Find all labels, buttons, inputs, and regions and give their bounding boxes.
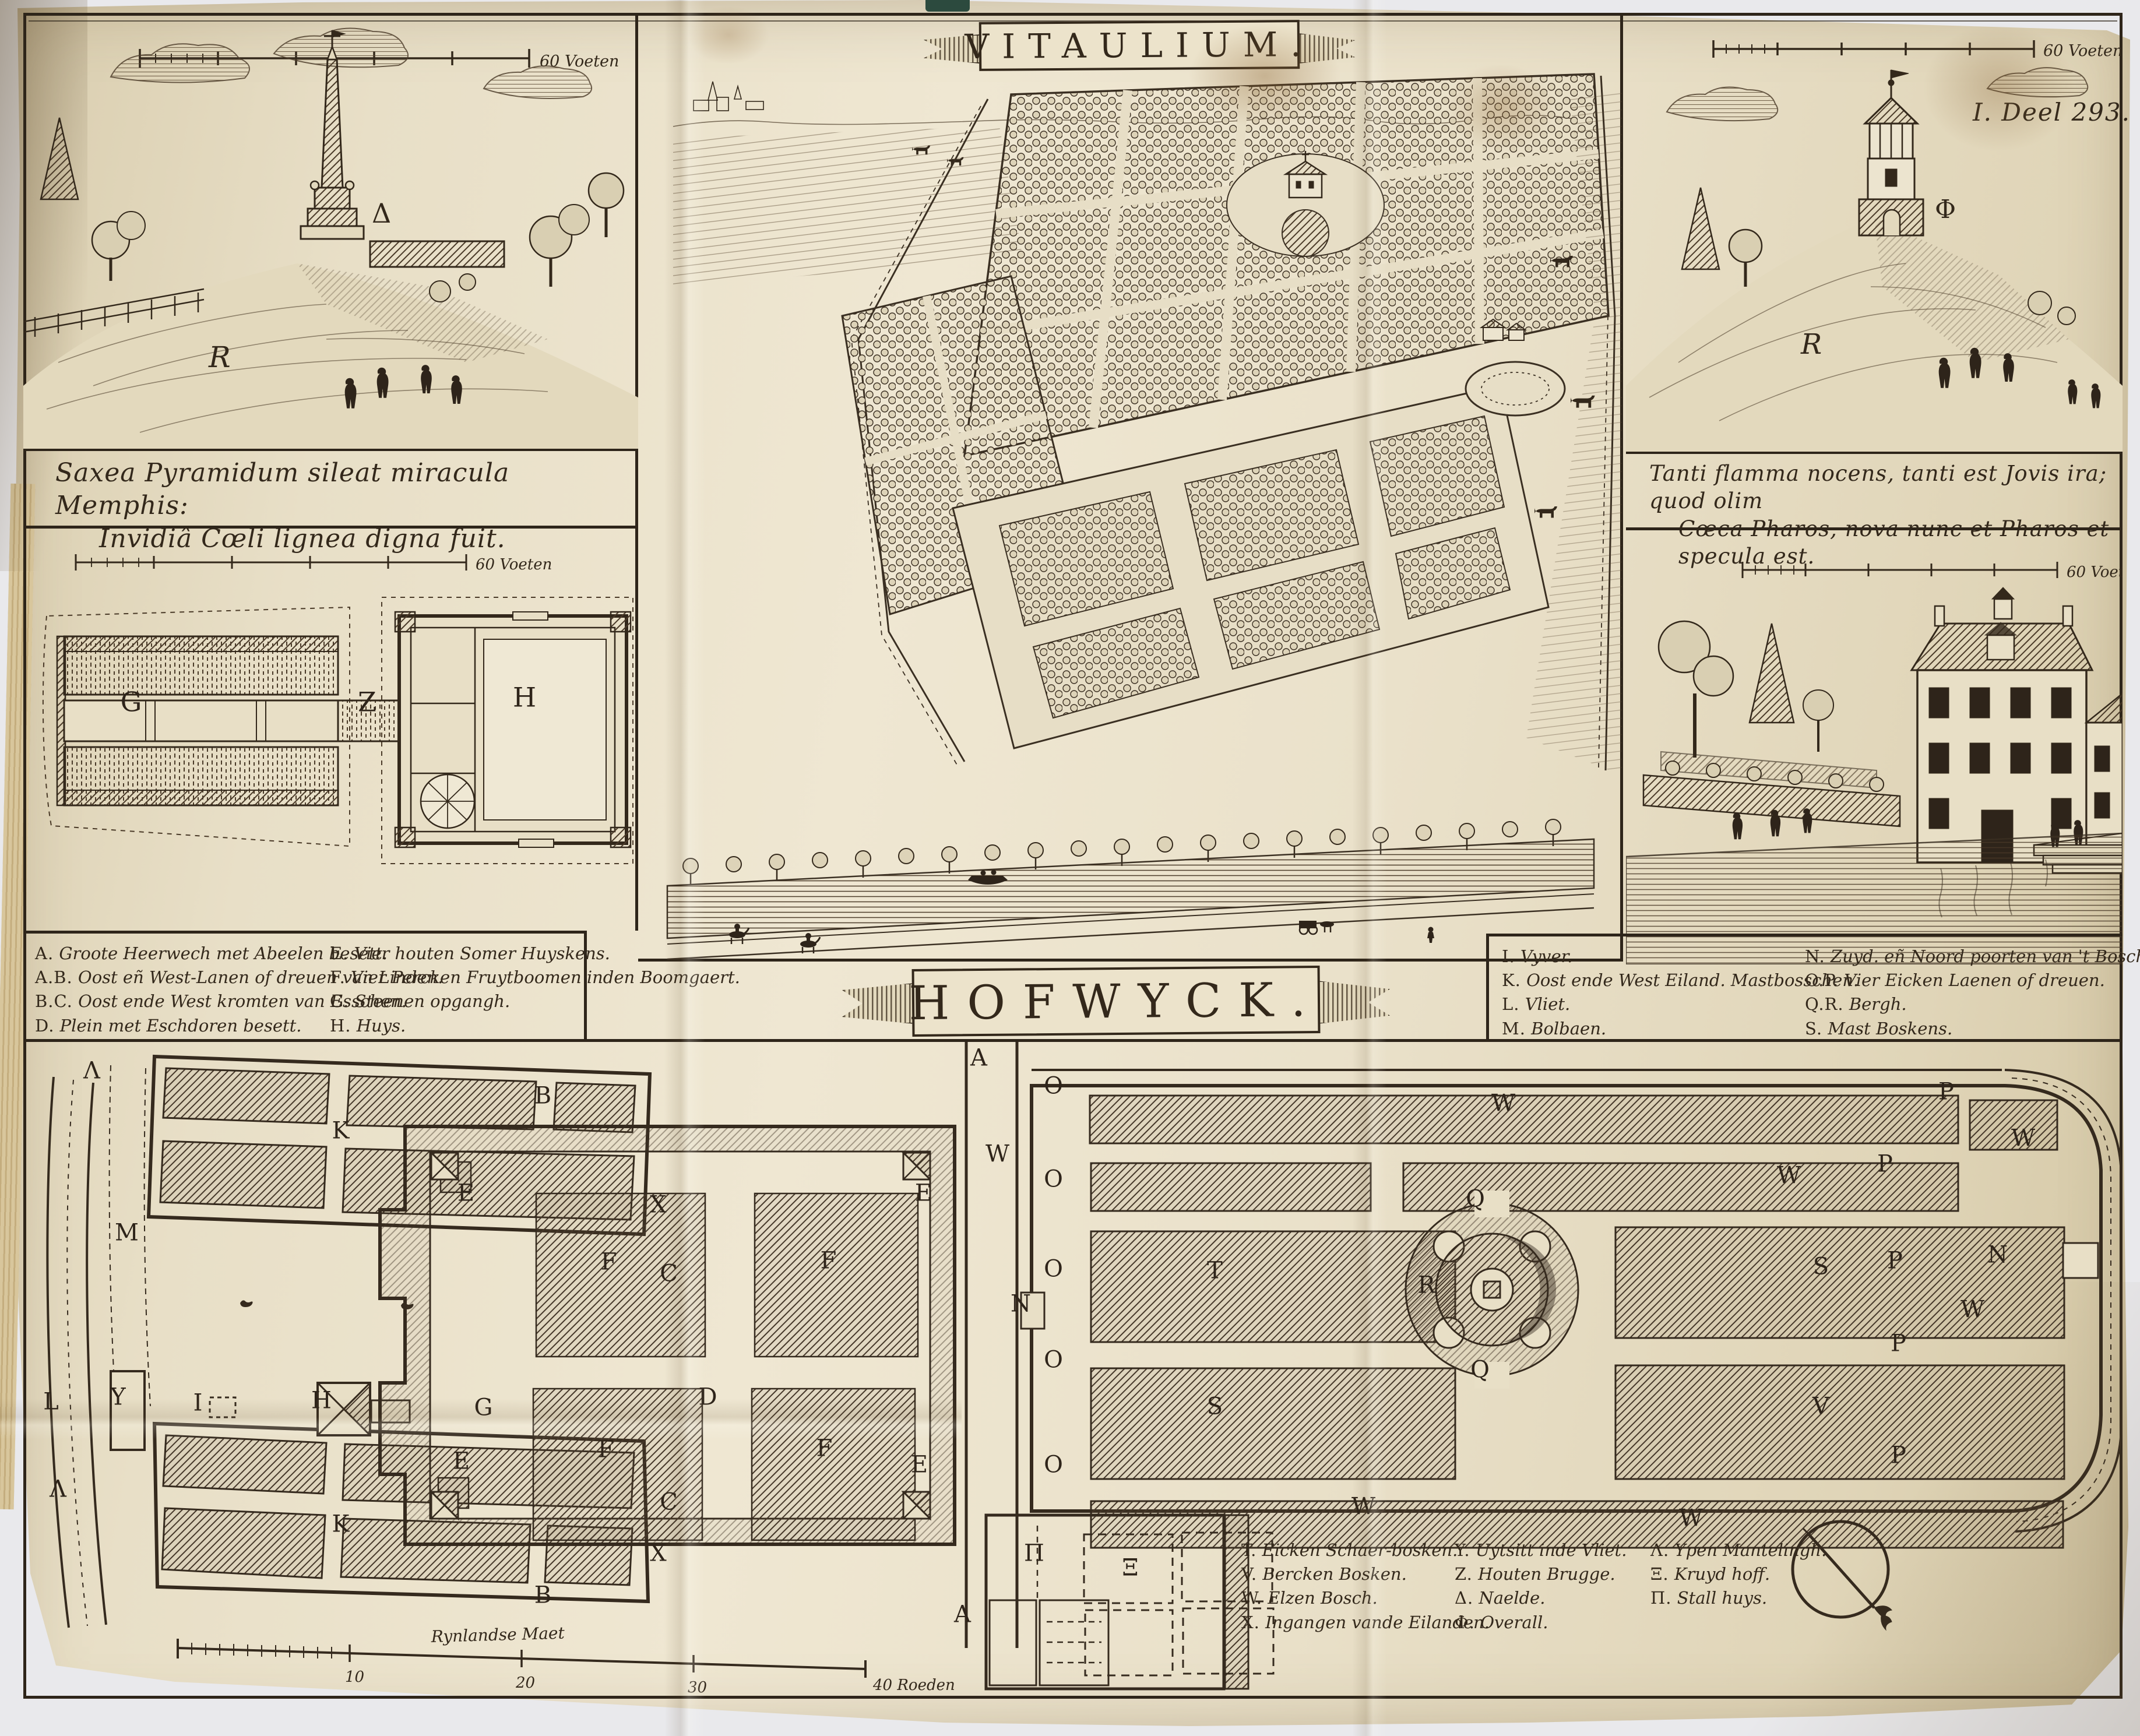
- plan-letter: K: [332, 1511, 350, 1538]
- plan-letter: V: [1812, 1393, 1830, 1420]
- plan-letter: I: [193, 1390, 203, 1417]
- plan-letter: B: [534, 1582, 552, 1609]
- canal: [667, 839, 1594, 938]
- plan-letter: Z: [358, 686, 376, 717]
- clouds: [111, 29, 592, 98]
- bolbaen-oval: [1466, 362, 1565, 415]
- legend-entry: Z. Houten Brugge.: [1455, 1562, 1629, 1586]
- plan-letter: F: [816, 1435, 833, 1462]
- legend-entry: M. Bolbaen.: [1502, 1017, 1793, 1041]
- plan-letter: C: [660, 1489, 678, 1516]
- obelisk-engraving: 60 Voeten: [23, 13, 638, 449]
- legend-top-left: A. Groote Heerwech met Abeelen besett.A.…: [23, 931, 587, 1039]
- legend-entry: L. Vliet.: [1502, 992, 1793, 1016]
- legend-entry: N. Zuyd. eñ Noord poorten van 't Bosch.: [1805, 945, 2120, 969]
- plan-letter: W: [1351, 1494, 1376, 1520]
- plan-letter: O: [1044, 1347, 1064, 1374]
- plan-letter: X: [650, 1192, 667, 1219]
- legend-entry: A.B. Oost eñ West-Lanen of dreuen van Li…: [35, 966, 315, 990]
- legend-entry: I. Vyver.: [1502, 945, 1793, 969]
- plan-letter: H: [311, 1388, 332, 1414]
- tower-icon: [1859, 70, 1923, 235]
- bookmark-ribbon: [925, 0, 970, 12]
- plan-letter: S: [1813, 1253, 1829, 1280]
- scale-label: 60 Voeten: [2043, 42, 2123, 60]
- latin-quote-right: Tanti flamma nocens, tanti est Jovis ira…: [1626, 452, 2123, 527]
- page-number: I. Deel 293.: [1973, 98, 2131, 126]
- plan-letter: E: [911, 1452, 928, 1478]
- plan-letter: R: [1417, 1272, 1435, 1299]
- plan-letter: Q: [1466, 1186, 1486, 1213]
- latin-quote-left: Saxea Pyramidum sileat miracula Memphis:…: [23, 449, 638, 526]
- quote-line: Saxea Pyramidum sileat miracula Memphis:: [55, 457, 635, 523]
- photograph-of-engraved-map: 60 Voeten: [0, 0, 2140, 1736]
- plan-letter: W: [1491, 1090, 1516, 1117]
- legend-entry: Q.R. Bergh.: [1805, 992, 2120, 1016]
- tower-engraving: 60 Voeten: [1626, 13, 2123, 452]
- plan-letter: E: [915, 1180, 932, 1207]
- house-engraving: 60 Voeten: [1626, 530, 2123, 964]
- legend-entry: K. Oost ende West Eiland. Mastbosschen.: [1502, 969, 1793, 992]
- plan-letter: H: [513, 681, 536, 713]
- plan-letter: P: [1877, 1151, 1893, 1178]
- legend-entry: Φ. Overall.: [1455, 1611, 1629, 1635]
- legend-entry: Λ. Ypen Mantelingh.: [1650, 1538, 1814, 1562]
- plan-letter: N: [1011, 1291, 1032, 1318]
- mount: [1282, 210, 1329, 256]
- legend-entry: Δ. Naelde.: [1455, 1586, 1629, 1610]
- legend-column-I-M: I. Vyver.K. Oost ende West Eiland. Mastb…: [1502, 945, 1793, 1034]
- plan-letter: W: [985, 1141, 1010, 1168]
- garden-plan: Rynlandse Maet 10 20 30 40 Roeden ΛBKMXC…: [23, 1039, 2123, 1699]
- plan-letter: P: [1891, 1442, 1907, 1469]
- trees: [1659, 621, 1833, 758]
- figure: [1733, 813, 1743, 840]
- obelisk-vignette: 60 Voeten: [23, 13, 638, 449]
- legend-entry: W. Elzen Bosch.: [1241, 1586, 1434, 1610]
- plan-letter: G: [121, 686, 142, 717]
- plan-letter: A: [954, 1601, 972, 1628]
- plan-letter: G: [474, 1395, 494, 1421]
- plan-letter: N: [1987, 1242, 2008, 1269]
- plan-letter-phi: Φ: [1935, 195, 1956, 224]
- plan-letter: L: [43, 1389, 59, 1415]
- legend-column-N-S: N. Zuyd. eñ Noord poorten van 't Bosch.O…: [1805, 945, 2120, 1034]
- legend-column-A-D: A. Groote Heerwech met Abeelen besett.A.…: [35, 942, 315, 1031]
- plan-letter: F: [821, 1248, 837, 1274]
- plan-letter: Y: [110, 1384, 126, 1411]
- plan-letter: O: [1044, 1452, 1064, 1478]
- plan-letter-r: R: [208, 340, 231, 374]
- legend-entry: Y. Uytsitt inde Vliet.: [1455, 1538, 1629, 1562]
- legend-entry: G. Steenen opgangh.: [330, 990, 580, 1013]
- legend-entry: B.C. Oost ende West kromten van Esschen.: [35, 990, 315, 1013]
- plan-letter: O: [1044, 1256, 1064, 1283]
- vitaulium-banner: VITAULIUM.: [924, 17, 1355, 76]
- scale-label: 60 Voeten: [2067, 564, 2123, 581]
- plan-letter: P: [1938, 1079, 1955, 1105]
- legend-entry: Π. Stall huys.: [1650, 1586, 1814, 1610]
- ribbon-tail-icon: [1312, 980, 1390, 1024]
- legend-column-Lambda-Pi: Λ. Ypen Mantelingh.Ξ. Kruyd hoff.Π. Stal…: [1650, 1538, 1814, 1635]
- house-ground-plan: 60 Voeten: [23, 526, 638, 931]
- plan-letter: P: [1891, 1330, 1907, 1357]
- legend-entry: S. Mast Boskens.: [1805, 1017, 2120, 1041]
- fields: [673, 126, 1023, 287]
- legend-column-T-X: T. Eicken Schaer-bosken.V. Bercken Boske…: [1241, 1538, 1434, 1635]
- plan-letter: E: [453, 1448, 470, 1475]
- legend-entry: V. Bercken Bosken.: [1241, 1562, 1434, 1586]
- plan-letter-r: R: [1800, 328, 1822, 361]
- plan-letter: Π: [1024, 1540, 1045, 1567]
- plan-letter: O: [1044, 1166, 1064, 1193]
- plan-letter: X: [650, 1540, 667, 1567]
- banner-title: HOFWYCK.: [912, 966, 1321, 1037]
- plan-letter: T: [1207, 1258, 1223, 1284]
- plan-letter: W: [1679, 1505, 1703, 1532]
- obelisk-icon: [301, 30, 504, 267]
- legend-entry: O.P. Vier Eicken Laenen of dreuen.: [1805, 969, 2120, 992]
- plan-letter-delta: Δ: [372, 198, 391, 229]
- plan-letter: D: [698, 1384, 717, 1411]
- quote-line: Tanti flamma nocens, tanti est Jovis ira…: [1649, 460, 2123, 515]
- plan-letter: M: [115, 1220, 139, 1246]
- hofwyck-house: [1912, 587, 2123, 862]
- plan-letter: E: [457, 1180, 475, 1207]
- scale-bar: [1743, 562, 2057, 578]
- scale-bar: [1713, 40, 2034, 58]
- cow: [1534, 506, 1557, 518]
- legend-bottom: T. Eicken Schaer-bosken.V. Bercken Boske…: [1241, 1538, 1814, 1635]
- plan-letter: F: [601, 1249, 618, 1276]
- legend-column-Y-Phi: Y. Uytsitt inde Vliet.Z. Houten Brugge.Δ…: [1455, 1538, 1629, 1635]
- distant-town: [694, 82, 763, 111]
- hofwyck-banner: HOFWYCK.: [842, 963, 1390, 1044]
- plan-letter: Q: [1470, 1357, 1490, 1383]
- legend-entry: F. Vier Percken Fruytboomen inden Boomga…: [330, 966, 580, 990]
- legend-entry: D. Plein met Eschdoren besett.: [35, 1014, 315, 1038]
- plan-letter: W: [1777, 1163, 1801, 1189]
- legend-entry: H. Huys.: [330, 1014, 580, 1038]
- plan-letter: K: [332, 1118, 350, 1145]
- legend-entry: E. Vier houten Somer Huyskens.: [330, 942, 580, 966]
- plan-letter: B: [534, 1083, 552, 1110]
- plan-letter: O: [1044, 1073, 1064, 1100]
- inset-letters: GZH: [23, 529, 635, 931]
- banner-title: VITAULIUM.: [979, 20, 1300, 71]
- tower-vignette: 60 Voeten: [1626, 13, 2123, 452]
- plan-letter: F: [598, 1436, 615, 1463]
- plan-letter: W: [2011, 1125, 2036, 1152]
- plan-letter: Λ: [50, 1476, 67, 1503]
- plan-letter: S: [1207, 1393, 1223, 1420]
- legend-entry: Ξ. Kruyd hoff.: [1650, 1562, 1814, 1586]
- legend-entry: A. Groote Heerwech met Abeelen besett.: [35, 942, 315, 966]
- legend-column-E-H: E. Vier houten Somer Huyskens.F. Vier Pe…: [330, 942, 580, 1031]
- plan-letter: C: [660, 1260, 678, 1287]
- estate-engraving: [638, 13, 1623, 962]
- plan-letter: A: [970, 1045, 988, 1072]
- legend-top-right: I. Vyver.K. Oost ende West Eiland. Mastb…: [1486, 934, 2123, 1042]
- estate-birdseye-vignette: [638, 13, 1623, 962]
- plan-letter: W: [1961, 1297, 1985, 1323]
- legend-entry: X. Ingangen vande Eilanden.: [1241, 1611, 1434, 1635]
- house-vignette: 60 Voeten: [1626, 527, 2123, 962]
- legend-entry: T. Eicken Schaer-bosken.: [1241, 1538, 1434, 1562]
- plan-letter: Ξ: [1122, 1555, 1139, 1582]
- plan-letter: Λ: [83, 1058, 101, 1084]
- plan-letter: P: [1887, 1248, 1903, 1274]
